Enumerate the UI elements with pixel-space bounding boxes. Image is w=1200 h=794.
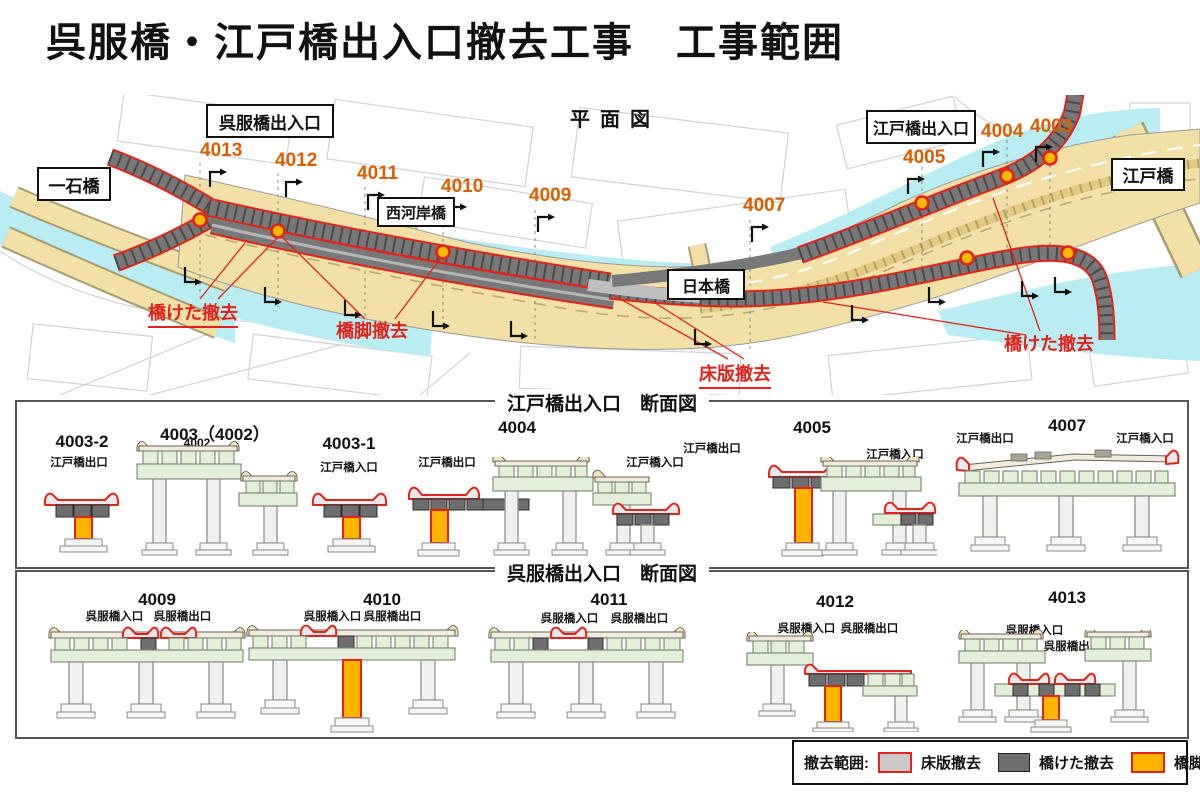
label-nishikashibashi: 西河岸橋 bbox=[377, 197, 455, 227]
legend-item-girder: 橋けた撤去 bbox=[1039, 752, 1114, 773]
pier-number-4013: 4013 bbox=[200, 140, 242, 162]
section-id-4003-1: 4003-1 bbox=[309, 434, 389, 454]
exit-label: 江戸橋出口 bbox=[672, 440, 752, 456]
note-pier-removal: 橋脚撤去 bbox=[336, 317, 408, 343]
section-id-4013: 4013 bbox=[1027, 588, 1107, 608]
gofukubashi-section-box: 呉服橋出入口 断面図 4009 呉服橋入口 呉服橋出口 4010 呉服橋入口 呉… bbox=[15, 570, 1189, 739]
section-id-4012: 4012 bbox=[795, 592, 875, 612]
pier-number-4007: 4007 bbox=[743, 195, 785, 217]
pier-number-4004: 4004 bbox=[981, 121, 1023, 143]
section-drawing-4011 bbox=[487, 624, 687, 732]
label-nihonbashi: 日本橋 bbox=[667, 269, 745, 300]
pier-number-4012: 4012 bbox=[275, 150, 317, 172]
girder-removal-swatch bbox=[998, 753, 1030, 772]
edobashi-section-title: 江戸橋出入口 断面図 bbox=[495, 389, 709, 416]
label-edobashi: 江戸橋 bbox=[1111, 158, 1185, 191]
page: 呉服橋・江戸橋出入口撤去工事 工事範囲 bbox=[0, 0, 1200, 794]
legend-item-pier: 橋脚撤去 bbox=[1174, 752, 1200, 773]
legend: 撤去範囲: 床版撤去 橋けた撤去 橋脚撤去 bbox=[792, 740, 1188, 785]
pier-number-4011: 4011 bbox=[357, 163, 398, 185]
gofukubashi-section-title: 呉服橋出入口 断面図 bbox=[495, 559, 709, 586]
legend-item-deck: 床版撤去 bbox=[921, 752, 981, 773]
page-title: 呉服橋・江戸橋出入口撤去工事 工事範囲 bbox=[46, 10, 844, 68]
pier-removal-swatch bbox=[1131, 752, 1165, 773]
pier-number-4009: 4009 bbox=[529, 185, 571, 207]
pier-number-4005: 4005 bbox=[903, 147, 945, 169]
section-drawing-4009 bbox=[47, 624, 247, 732]
section-id-4005: 4005 bbox=[777, 418, 847, 438]
deck-removal-swatch bbox=[878, 752, 912, 773]
section-drawing-4007 bbox=[955, 444, 1180, 557]
section-id-4009: 4009 bbox=[122, 590, 192, 610]
section-id-4003-2: 4003-2 bbox=[37, 432, 127, 452]
label-ichikokubashi: 一石橋 bbox=[37, 167, 111, 201]
section-drawing-4003-4002 bbox=[129, 440, 299, 557]
note-girder-removal-left: 橋けた撤去 bbox=[148, 299, 238, 328]
plan-view: 平面図 呉服橋出入口 江戸橋出入口 一石橋 西河岸橋 日本橋 江戸橋 4013 … bbox=[0, 95, 1200, 395]
label-gofukubashi-ramp: 呉服橋出入口 bbox=[206, 104, 334, 138]
exit-label: 江戸橋出口 bbox=[29, 454, 129, 470]
edobashi-section-box: 江戸橋出入口 断面図 4003-2 江戸橋出口 4003（4002） 4002 bbox=[15, 400, 1189, 569]
section-id-4010: 4010 bbox=[342, 590, 422, 610]
note-girder-removal-right: 橋けた撤去 bbox=[1004, 330, 1094, 356]
legend-label: 撤去範囲: bbox=[804, 752, 869, 773]
exit-label: 呉服橋出口 bbox=[145, 608, 220, 624]
plan-heading: 平面図 bbox=[545, 103, 685, 132]
section-drawing-4010 bbox=[245, 620, 460, 735]
section-id-4004: 4004 bbox=[477, 418, 557, 438]
note-deck-removal: 床版撤去 bbox=[699, 360, 771, 389]
section-drawing-4004 bbox=[405, 457, 685, 557]
section-drawing-4003-1 bbox=[307, 490, 397, 554]
entrance-label: 江戸橋入口 bbox=[299, 459, 399, 475]
section-id-4011: 4011 bbox=[569, 590, 649, 610]
section-drawing-4005 bbox=[687, 457, 937, 557]
label-edobashi-ramp: 江戸橋出入口 bbox=[866, 110, 976, 144]
section-id-4007: 4007 bbox=[1027, 416, 1107, 436]
pier-number-4003: 4003 bbox=[1030, 116, 1072, 138]
pier-number-4010: 4010 bbox=[441, 176, 483, 198]
section-drawing-4003-2 bbox=[39, 490, 129, 554]
entrance-label: 呉服橋入口 bbox=[77, 608, 152, 624]
section-drawing-4012 bbox=[745, 632, 920, 732]
section-drawing-4013 bbox=[955, 630, 1155, 742]
